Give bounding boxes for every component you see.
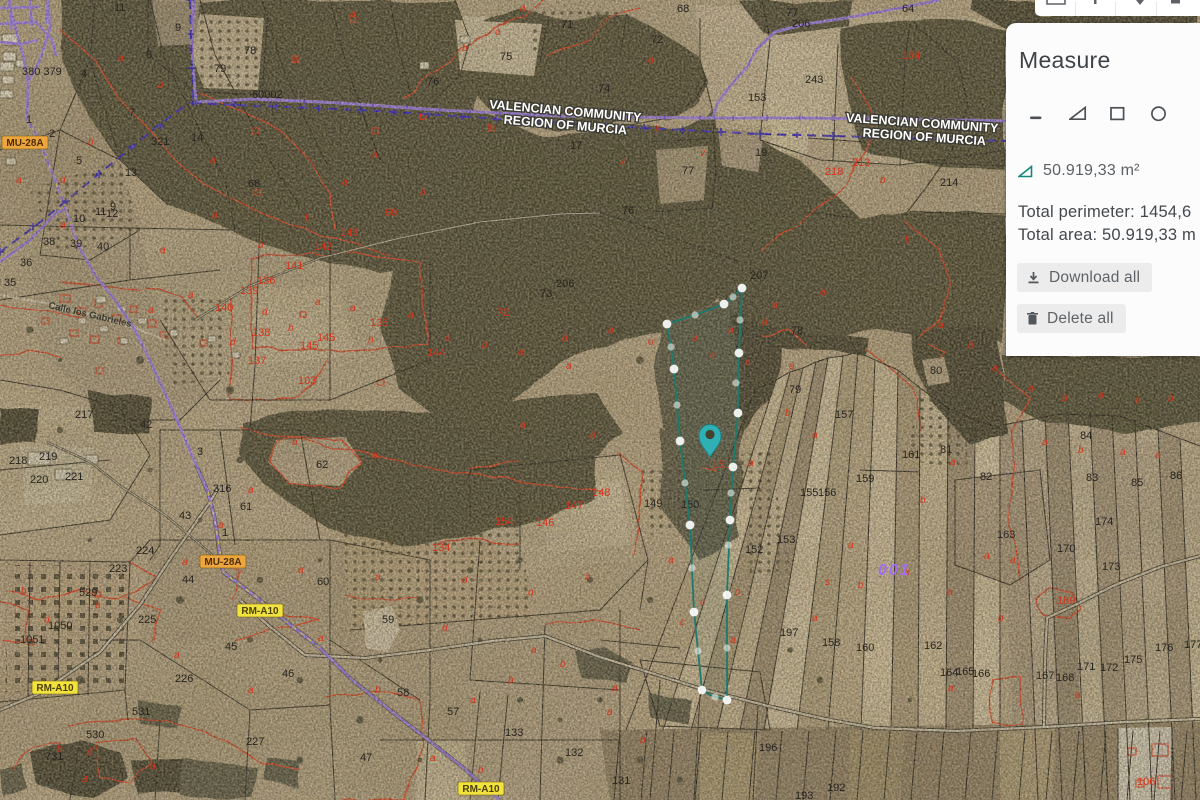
- svg-text:139: 139: [240, 285, 258, 297]
- svg-text:219: 219: [39, 451, 57, 463]
- svg-text:530: 530: [86, 729, 104, 741]
- svg-text:154: 154: [902, 50, 920, 62]
- svg-text:213: 213: [852, 157, 870, 169]
- svg-text:a: a: [812, 613, 818, 624]
- svg-text:42: 42: [140, 419, 152, 431]
- svg-text:a: a: [248, 685, 254, 696]
- svg-text:a: a: [1075, 690, 1081, 701]
- svg-text:142: 142: [314, 241, 332, 253]
- svg-text:57: 57: [447, 706, 459, 718]
- svg-text:132: 132: [565, 747, 583, 759]
- svg-text:b: b: [158, 80, 164, 91]
- svg-text:b: b: [560, 659, 566, 670]
- svg-text:a: a: [188, 290, 194, 301]
- svg-text:39: 39: [70, 238, 82, 250]
- svg-text:a: a: [1028, 383, 1034, 394]
- svg-text:207: 207: [750, 270, 768, 282]
- svg-text:a: a: [648, 55, 654, 66]
- svg-text:a: a: [160, 245, 166, 256]
- svg-text:161: 161: [902, 449, 920, 461]
- svg-text:59: 59: [382, 614, 394, 626]
- svg-text:1050: 1050: [48, 620, 72, 632]
- svg-text:a: a: [950, 457, 956, 468]
- svg-text:a: a: [984, 551, 990, 562]
- svg-text:170: 170: [1057, 543, 1075, 555]
- svg-text:a: a: [772, 300, 778, 311]
- svg-text:a: a: [212, 210, 218, 221]
- svg-text:321: 321: [151, 136, 169, 148]
- svg-text:72: 72: [497, 307, 509, 319]
- svg-text:a: a: [293, 55, 299, 66]
- svg-text:163: 163: [997, 529, 1015, 541]
- svg-text:a: a: [1135, 395, 1141, 406]
- svg-text:b: b: [1168, 393, 1174, 404]
- svg-text:a: a: [1042, 437, 1048, 448]
- svg-text:168: 168: [1056, 672, 1074, 684]
- svg-text:s: s: [825, 577, 830, 588]
- svg-text:173: 173: [1102, 561, 1120, 573]
- svg-text:174: 174: [1095, 516, 1113, 528]
- svg-text:a: a: [812, 430, 818, 441]
- svg-text:192: 192: [827, 782, 845, 794]
- svg-text:61: 61: [240, 501, 252, 513]
- svg-text:b: b: [258, 240, 264, 251]
- svg-text:d: d: [60, 175, 66, 186]
- svg-text:2: 2: [49, 128, 55, 140]
- svg-text:11: 11: [114, 2, 125, 14]
- svg-text:b: b: [305, 213, 311, 224]
- svg-text:193: 193: [795, 790, 813, 800]
- svg-text:243: 243: [805, 74, 823, 86]
- svg-text:q: q: [528, 587, 534, 598]
- svg-text:a: a: [1155, 450, 1161, 461]
- svg-text:a: a: [518, 347, 524, 358]
- svg-text:b: b: [640, 735, 646, 746]
- svg-text:a: a: [445, 333, 451, 344]
- svg-text:169: 169: [1057, 595, 1075, 607]
- svg-text:b: b: [288, 323, 294, 334]
- svg-text:134: 134: [432, 542, 450, 554]
- svg-text:a: a: [1010, 555, 1016, 566]
- svg-text:c: c: [680, 617, 685, 628]
- svg-text:214: 214: [940, 177, 958, 189]
- svg-text:58: 58: [397, 687, 409, 699]
- svg-text:79: 79: [214, 63, 226, 75]
- svg-text:a: a: [95, 600, 101, 611]
- svg-text:36: 36: [20, 257, 32, 269]
- svg-text:218: 218: [825, 166, 843, 178]
- svg-text:223: 223: [109, 563, 127, 575]
- svg-text:316: 316: [213, 483, 231, 495]
- svg-text:138: 138: [252, 327, 270, 339]
- svg-text:60002: 60002: [252, 89, 283, 101]
- svg-text:14: 14: [191, 132, 203, 144]
- svg-text:h: h: [372, 150, 378, 161]
- svg-text:a: a: [174, 650, 180, 661]
- svg-text:d: d: [87, 747, 93, 758]
- svg-text:40: 40: [97, 241, 109, 253]
- svg-text:227: 227: [246, 736, 264, 748]
- svg-text:a: a: [531, 645, 537, 656]
- svg-text:b: b: [462, 43, 468, 54]
- svg-text:76: 76: [427, 76, 439, 88]
- svg-text:220: 220: [30, 474, 48, 486]
- svg-text:4: 4: [82, 775, 88, 786]
- svg-text:a: a: [182, 557, 188, 568]
- svg-text:x: x: [619, 157, 626, 168]
- svg-text:155: 155: [800, 487, 818, 499]
- svg-text:43: 43: [179, 510, 191, 522]
- svg-text:b: b: [590, 430, 596, 441]
- svg-text:3: 3: [197, 446, 203, 458]
- svg-text:176: 176: [1155, 642, 1173, 654]
- svg-text:a: a: [16, 175, 22, 186]
- svg-text:85: 85: [1131, 477, 1143, 489]
- svg-text:b: b: [905, 235, 911, 246]
- svg-text:133: 133: [505, 727, 523, 739]
- svg-text:35: 35: [4, 277, 16, 289]
- svg-text:380 379: 380 379: [22, 66, 62, 78]
- svg-text:46: 46: [282, 668, 294, 680]
- svg-text:RM-A10: RM-A10: [36, 683, 74, 694]
- svg-text:531: 531: [132, 706, 150, 718]
- svg-text:224: 224: [136, 545, 154, 557]
- svg-text:64: 64: [902, 3, 914, 15]
- svg-text:149: 149: [644, 498, 662, 510]
- svg-text:81: 81: [940, 444, 952, 456]
- svg-text:69: 69: [385, 207, 397, 219]
- svg-text:45: 45: [225, 641, 237, 653]
- svg-text:a: a: [848, 540, 854, 551]
- svg-text:73: 73: [540, 288, 552, 300]
- svg-text:a: a: [520, 420, 526, 431]
- svg-text:a: a: [298, 565, 304, 576]
- svg-text:a: a: [607, 707, 613, 718]
- svg-text:1051: 1051: [20, 634, 44, 646]
- svg-text:38: 38: [43, 236, 55, 248]
- svg-text:78: 78: [791, 325, 803, 337]
- svg-text:79: 79: [789, 384, 801, 396]
- svg-text:b: b: [21, 586, 27, 597]
- svg-text:a: a: [947, 587, 953, 598]
- svg-text:103: 103: [298, 375, 316, 387]
- svg-text:171: 171: [1077, 661, 1095, 673]
- svg-text:a: a: [318, 633, 324, 644]
- svg-text:226: 226: [175, 673, 193, 685]
- svg-text:83: 83: [1086, 472, 1098, 484]
- svg-text:b: b: [920, 495, 926, 506]
- svg-text:166: 166: [972, 668, 990, 680]
- svg-text:177: 177: [1184, 639, 1200, 651]
- svg-text:17: 17: [570, 140, 582, 152]
- svg-text:a: a: [789, 361, 795, 372]
- svg-text:a: a: [1120, 447, 1126, 458]
- svg-text:10: 10: [73, 213, 85, 225]
- svg-text:146: 146: [536, 517, 554, 529]
- svg-text:145: 145: [300, 340, 318, 352]
- svg-text:225: 225: [138, 614, 156, 626]
- svg-text:d: d: [44, 615, 50, 626]
- svg-text:196: 196: [759, 742, 777, 754]
- svg-text:1: 1: [26, 114, 32, 126]
- svg-text:b: b: [88, 137, 94, 148]
- svg-text:136: 136: [257, 275, 275, 287]
- svg-text:b: b: [968, 340, 974, 351]
- svg-text:9: 9: [175, 22, 181, 34]
- svg-text:143: 143: [340, 227, 358, 239]
- svg-text:221: 221: [65, 471, 83, 483]
- svg-text:d: d: [230, 337, 236, 348]
- svg-text:162: 162: [924, 640, 942, 652]
- svg-text:a: a: [118, 53, 124, 64]
- svg-text:68: 68: [677, 3, 689, 15]
- svg-text:197: 197: [780, 627, 798, 639]
- svg-text:75: 75: [500, 51, 512, 63]
- svg-text:a: a: [210, 155, 216, 166]
- svg-text:167: 167: [1036, 670, 1054, 682]
- svg-text:b: b: [562, 333, 568, 344]
- svg-text:a: a: [148, 305, 154, 316]
- svg-text:60: 60: [317, 576, 329, 588]
- svg-text:175: 175: [1124, 654, 1142, 666]
- svg-text:a: a: [668, 555, 674, 566]
- svg-text:159: 159: [856, 473, 874, 485]
- svg-text:a: a: [350, 9, 356, 20]
- svg-text:76: 76: [622, 205, 634, 217]
- svg-text:a: a: [585, 572, 591, 583]
- svg-text:b: b: [478, 765, 484, 776]
- svg-text:172: 172: [1100, 662, 1118, 674]
- svg-text:a: a: [745, 357, 751, 368]
- svg-text:a: a: [350, 303, 356, 314]
- svg-text:153: 153: [748, 92, 766, 104]
- svg-text:a: a: [248, 485, 254, 496]
- svg-text:001: 001: [878, 562, 911, 579]
- svg-text:206: 206: [792, 18, 810, 30]
- svg-text:62: 62: [316, 459, 328, 471]
- svg-text:158: 158: [822, 637, 840, 649]
- svg-text:a: a: [372, 450, 378, 461]
- svg-text:x: x: [654, 123, 661, 134]
- svg-text:11: 11: [95, 206, 106, 218]
- svg-text:a: a: [608, 325, 614, 336]
- svg-text:a: a: [520, 3, 526, 14]
- svg-text:b: b: [508, 675, 514, 686]
- svg-text:a: a: [495, 27, 501, 38]
- svg-text:a: a: [375, 572, 381, 583]
- svg-text:153: 153: [777, 534, 795, 546]
- svg-text:a: a: [948, 683, 954, 694]
- svg-text:RM-A10: RM-A10: [241, 606, 279, 617]
- svg-text:b: b: [57, 744, 63, 755]
- svg-text:b: b: [858, 580, 864, 591]
- svg-text:b: b: [785, 408, 791, 419]
- svg-text:c: c: [487, 121, 492, 132]
- svg-text:12: 12: [106, 208, 118, 220]
- svg-text:a: a: [60, 220, 66, 231]
- svg-text:a: a: [612, 683, 618, 694]
- svg-text:a: a: [342, 177, 348, 188]
- svg-text:135: 135: [370, 317, 388, 329]
- svg-text:b: b: [292, 437, 298, 448]
- svg-text:137: 137: [248, 355, 266, 367]
- svg-text:78: 78: [244, 45, 256, 57]
- svg-text:a: a: [992, 363, 998, 374]
- svg-text:d: d: [442, 623, 448, 634]
- svg-text:a: a: [1098, 390, 1104, 401]
- svg-text:a: a: [938, 320, 944, 331]
- svg-text:13: 13: [125, 167, 137, 179]
- svg-text:74: 74: [598, 83, 610, 95]
- svg-text:80: 80: [930, 365, 942, 377]
- svg-text:MU-28A: MU-28A: [204, 557, 241, 568]
- svg-text:71: 71: [561, 19, 573, 31]
- svg-text:218: 218: [9, 455, 27, 467]
- svg-text:b: b: [482, 340, 488, 351]
- svg-text:d: d: [262, 307, 268, 318]
- svg-text:206: 206: [556, 278, 574, 290]
- svg-text:77: 77: [682, 165, 694, 177]
- svg-text:106: 106: [1137, 776, 1155, 788]
- svg-text:82: 82: [980, 471, 992, 483]
- svg-text:o: o: [735, 587, 741, 598]
- svg-text:86: 86: [1170, 470, 1182, 482]
- svg-text:44: 44: [182, 574, 194, 586]
- svg-text:8: 8: [146, 49, 152, 61]
- svg-text:a: a: [820, 287, 826, 298]
- svg-text:b: b: [1078, 445, 1084, 456]
- svg-text:157: 157: [835, 409, 853, 421]
- svg-text:o: o: [648, 337, 654, 348]
- svg-text:b: b: [998, 613, 1004, 624]
- svg-text:156: 156: [818, 487, 836, 499]
- svg-text:154: 154: [495, 516, 513, 528]
- svg-text:147: 147: [565, 500, 583, 512]
- svg-text:131: 131: [612, 775, 630, 787]
- svg-text:47: 47: [360, 752, 372, 764]
- svg-text:MU-28A: MU-28A: [6, 138, 43, 149]
- svg-text:b: b: [1062, 393, 1068, 404]
- svg-text:a: a: [566, 361, 572, 372]
- svg-text:141: 141: [285, 260, 303, 272]
- svg-text:217: 217: [75, 409, 93, 421]
- svg-text:7: 7: [129, 107, 135, 119]
- svg-text:152: 152: [745, 544, 763, 556]
- svg-text:148: 148: [592, 487, 610, 499]
- svg-text:a: a: [408, 310, 414, 321]
- svg-text:a: a: [315, 297, 321, 308]
- svg-text:b: b: [762, 317, 768, 328]
- svg-text:b: b: [880, 175, 886, 186]
- svg-text:144: 144: [427, 347, 445, 359]
- svg-text:68: 68: [248, 178, 260, 190]
- svg-text:b: b: [419, 112, 425, 123]
- svg-text:140: 140: [215, 302, 233, 314]
- svg-text:a: a: [748, 458, 754, 469]
- svg-text:84: 84: [1080, 430, 1092, 442]
- svg-text:b: b: [375, 685, 381, 696]
- svg-text:19: 19: [755, 147, 767, 159]
- svg-text:d: d: [462, 575, 468, 586]
- svg-text:a: a: [470, 695, 476, 706]
- svg-text:160: 160: [856, 642, 874, 654]
- svg-text:a: a: [730, 635, 736, 646]
- svg-text:4: 4: [81, 68, 87, 80]
- svg-text:RM-A10: RM-A10: [462, 784, 500, 795]
- svg-text:a: a: [150, 761, 156, 772]
- svg-text:a: a: [430, 753, 436, 764]
- svg-text:5: 5: [76, 155, 82, 167]
- svg-text:a: a: [218, 520, 224, 531]
- svg-text:529: 529: [79, 587, 97, 599]
- svg-text:72: 72: [651, 34, 663, 46]
- svg-text:145: 145: [317, 332, 335, 344]
- svg-text:b: b: [420, 187, 426, 198]
- svg-text:h: h: [368, 335, 374, 346]
